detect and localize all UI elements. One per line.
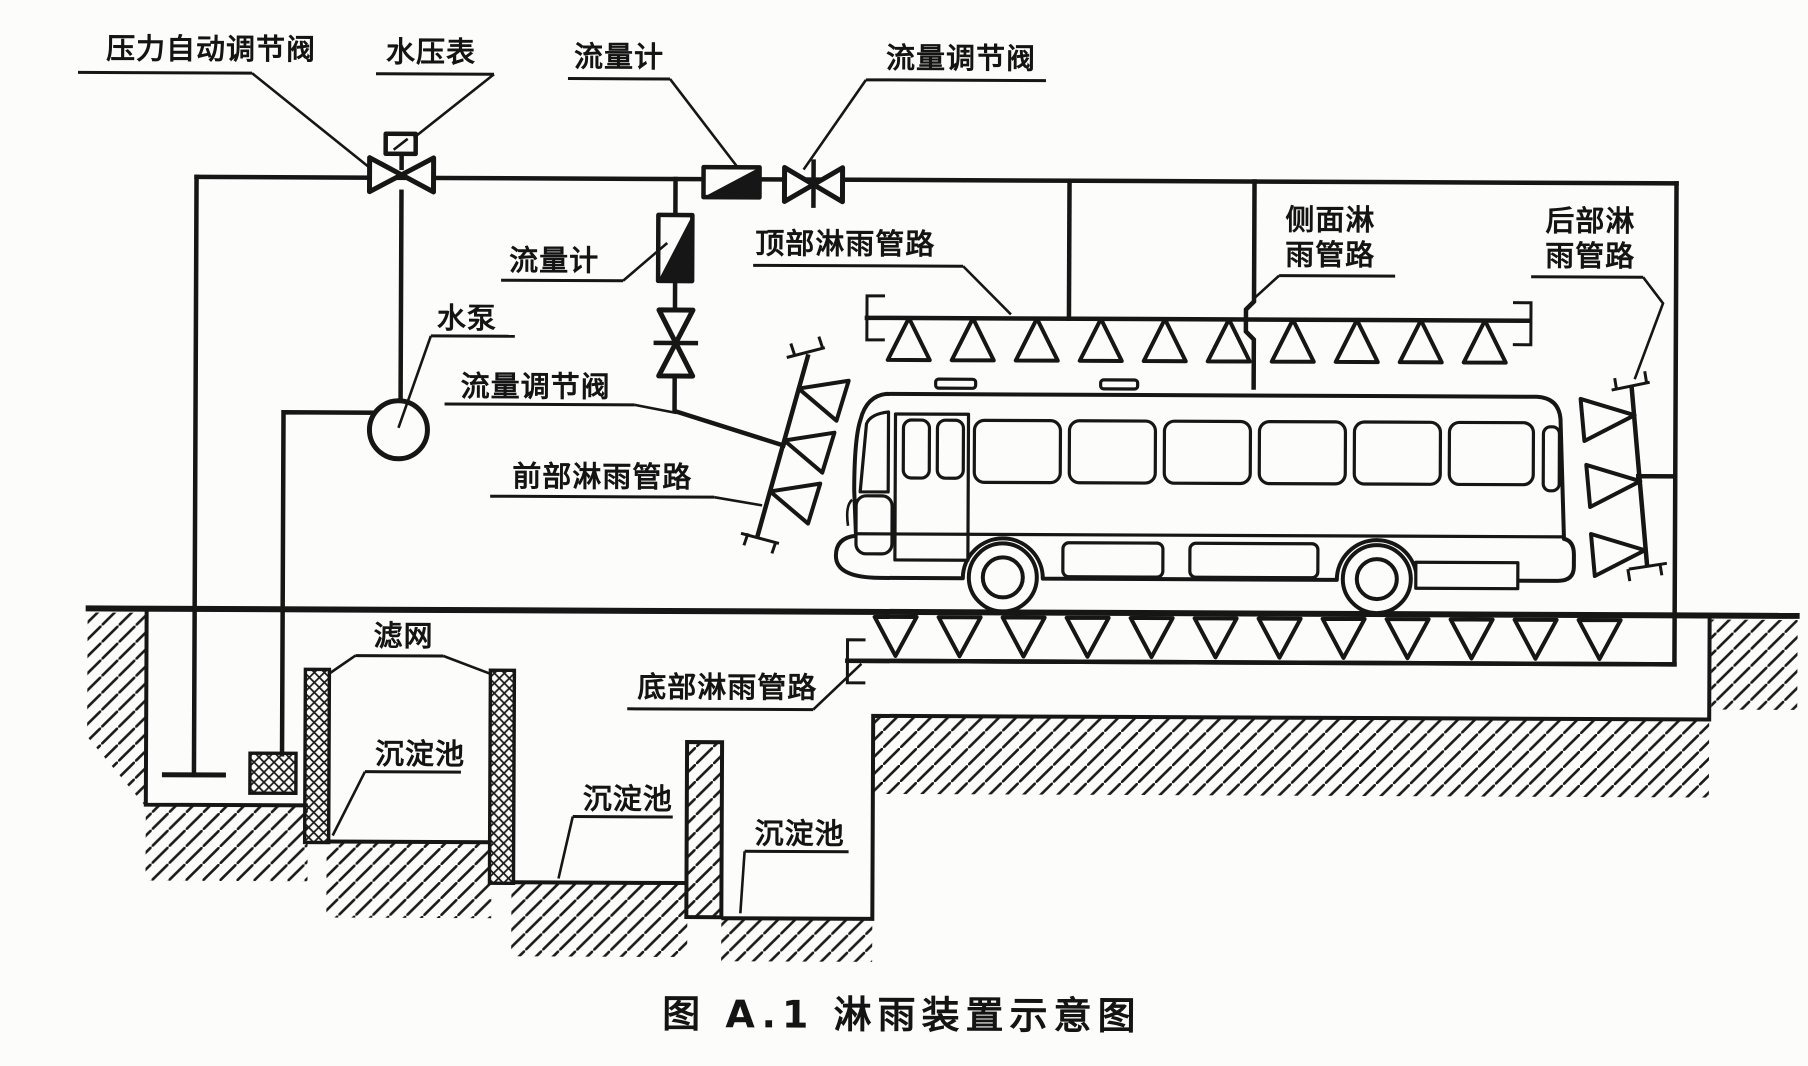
label-top-spray-pipe: 顶部淋雨管路: [755, 226, 935, 261]
door-window-1: [903, 420, 929, 478]
valve-wing-right: [401, 158, 433, 192]
leader-settling-tank-2: [558, 816, 572, 878]
label-water-pressure-gauge: 水压表: [386, 35, 476, 69]
front-pipe-bracket-bottom: [741, 533, 779, 553]
water-pump-symbol: [369, 401, 427, 459]
rear-step: [1416, 562, 1518, 588]
roof-vent-2: [1101, 380, 1138, 389]
underline-flow-valve-branch: [445, 404, 635, 405]
front-spray-pipe-group: [741, 336, 849, 553]
rear-pipe-bracket-bottom: [1628, 563, 1667, 581]
label-rear-spray-pipe-line2: 雨管路: [1545, 239, 1635, 273]
leader-pressure-auto-valve: [252, 73, 370, 168]
earth-hatch-right: [1711, 620, 1797, 710]
label-settling-tank-2: 沉淀池: [583, 782, 673, 816]
skirt-panel-2: [1190, 543, 1318, 578]
earth-hatch-under-tank1: [326, 842, 491, 918]
label-flow-valve-main: 流量调节阀: [886, 41, 1036, 76]
earth-hatch-trench: [873, 717, 1709, 798]
underline-side-spray-pipe: [1279, 276, 1395, 277]
rear-quarter-window: [1543, 427, 1559, 491]
label-flow-meter-main: 流量计: [574, 40, 664, 74]
label-bottom-spray-pipe: 底部淋雨管路: [637, 670, 817, 705]
label-side-spray-pipe-line2: 雨管路: [1285, 238, 1375, 272]
leader-side-spray-pipe: [1255, 276, 1279, 298]
label-rear-spray-pipe-line1: 后部淋: [1545, 204, 1635, 238]
front-panel: [856, 496, 892, 554]
leader-flow-meter-main: [670, 79, 738, 167]
door-window-2: [937, 420, 963, 478]
bottom-nozzle-cones: [874, 617, 1620, 659]
pressure-regulating-valve: [369, 134, 433, 192]
skirt-panel-1: [1063, 543, 1163, 577]
front-wheel: [969, 543, 1037, 611]
top-pipe-drop: [1069, 181, 1070, 319]
underline-bottom-spray-pipe: [627, 709, 813, 710]
scanned-figure-page: 压力自动调节阀 水压表 流量计 流量调节阀 流量计 水泵 流量调节阀 前部淋雨管…: [0, 0, 1808, 1066]
rear-pipe-bracket-top: [1612, 371, 1650, 390]
top-pipe-bracket-right: [1513, 303, 1531, 345]
pump-discharge-pipe: [401, 192, 402, 402]
leader-front-spray-pipe: [714, 497, 762, 505]
filter-screen-column-1: [305, 669, 330, 842]
underline-flow-valve-main: [866, 80, 1046, 81]
leader-settling-tank-1: [333, 772, 365, 836]
label-water-pump: 水泵: [437, 301, 497, 335]
flow-meter-main-symbol: [703, 167, 759, 197]
branch-pipe-lower: [674, 281, 784, 445]
label-flow-valve-branch: 流量调节阀: [461, 369, 611, 404]
wiper-mark: [847, 500, 852, 526]
pump-suction-pipe: [282, 412, 380, 754]
bus: [836, 379, 1575, 614]
flow-valve-main-symbol: [784, 161, 842, 205]
flow-valve-branch-symbol: [656, 310, 696, 376]
leader-flow-valve-branch: [635, 405, 677, 413]
earth-hatch-left: [87, 612, 147, 806]
leader-top-spray-pipe: [963, 266, 1011, 314]
label-settling-tank-3: 沉淀池: [755, 816, 845, 850]
left-return-pipe: [194, 177, 197, 775]
label-front-spray-pipe: 前部淋雨管路: [512, 459, 692, 494]
rear-wheel: [1343, 545, 1411, 613]
tank2-floor: [511, 882, 687, 883]
leader-filter-screen: [329, 655, 491, 674]
filter-screen-column-2: [489, 670, 514, 883]
underline-flow-meter-branch: [501, 280, 623, 281]
suction-strainer-box: [250, 753, 296, 793]
ground-line: [86, 608, 1800, 615]
label-side-spray-pipe-line1: 侧面淋: [1285, 203, 1375, 237]
label-settling-tank-1: 沉淀池: [375, 737, 465, 771]
figure-caption: 图 A.1 淋雨装置示意图: [662, 992, 1142, 1038]
roof-vent-1: [936, 379, 976, 388]
leader-rear-spray-pipe: [1635, 277, 1663, 379]
label-pressure-auto-valve: 压力自动调节阀: [106, 32, 316, 67]
tank1-floor: [327, 841, 492, 842]
bottom-spray-pipe-line: [847, 661, 1674, 665]
top-spray-pipe-line: [867, 318, 1529, 321]
underline-front-spray-pipe: [490, 496, 714, 497]
underline-water-pressure-gauge: [376, 74, 494, 75]
leader-bottom-spray-pipe: [813, 664, 861, 710]
label-rear-spray-pipe: 后部淋 雨管路: [1531, 204, 1664, 380]
underline-pressure-auto-valve: [78, 72, 252, 73]
label-filter-screen: 滤网: [373, 619, 433, 653]
top-nozzle-cones: [888, 318, 1506, 363]
valve-wing-left: [369, 158, 401, 192]
rain-test-diagram: 压力自动调节阀 水压表 流量计 流量调节阀 流量计 水泵 流量调节阀 前部淋雨管…: [0, 0, 1808, 1066]
leader-water-pressure-gauge: [414, 74, 494, 138]
label-side-spray-pipe: 侧面淋 雨管路: [1255, 203, 1395, 299]
earth-hatch-under-tank2: [511, 883, 687, 957]
divider-wall-hatched: [686, 742, 722, 917]
underline-top-spray-pipe: [753, 265, 963, 266]
label-flow-meter-branch: 流量计: [509, 243, 599, 277]
earth-hatch-under-tank3: [721, 919, 872, 962]
leader-flow-valve-main: [804, 80, 866, 170]
leader-settling-tank-3: [740, 851, 744, 913]
earth-hatch-under-pit1: [145, 806, 307, 882]
front-pipe-bracket-top: [787, 336, 825, 357]
